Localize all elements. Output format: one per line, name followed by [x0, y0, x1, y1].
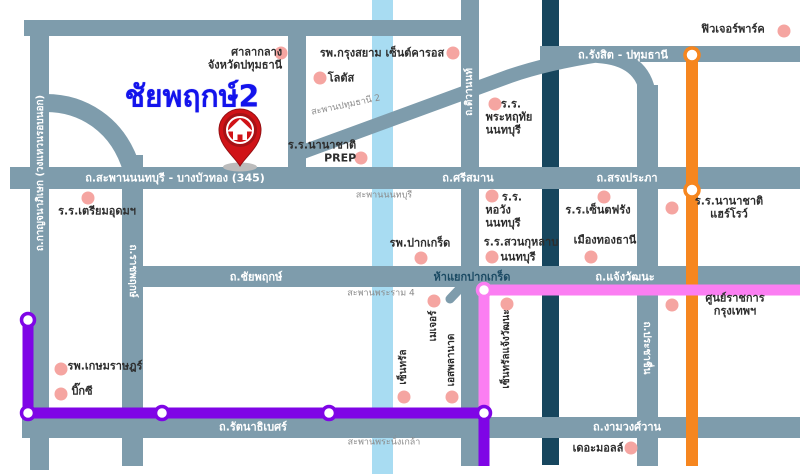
road-prachachuen	[637, 85, 658, 466]
road-ratchaphruek	[122, 155, 143, 466]
orange-transit-line	[686, 48, 698, 466]
poi-dot-esplanade	[446, 391, 459, 404]
station-futurepark	[685, 48, 699, 62]
poi-dot-prep	[355, 152, 368, 165]
poi-dot-horwang	[486, 190, 499, 203]
poi-dot-lotus	[314, 72, 327, 85]
station-songprapha	[685, 183, 699, 197]
poi-dot-central	[398, 391, 411, 404]
poi-dot-gov-center	[666, 299, 679, 312]
poi-dot-harrow	[666, 202, 679, 215]
station-purple-2	[22, 407, 35, 420]
poi-dot-bigc	[55, 388, 68, 401]
poi-dot-city-hall	[275, 47, 288, 60]
purple-line-stations	[22, 314, 491, 420]
station-purple-3	[156, 407, 169, 420]
poi-dot-muangthong	[585, 251, 598, 264]
location-pin-icon	[219, 109, 261, 172]
poi-dot-central-chaengwattana	[501, 298, 514, 311]
station-purple-4	[323, 407, 336, 420]
poi-dot-krungsiam	[447, 47, 460, 60]
poi-dots	[55, 25, 791, 455]
poi-dot-kasemrad	[55, 363, 68, 376]
poi-dot-suankularb	[486, 251, 499, 264]
poi-dot-stfrang	[598, 191, 611, 204]
map-graphics	[0, 0, 800, 474]
curve-kanchana-ratchaphruek	[46, 103, 132, 170]
pink-line-stations	[478, 284, 491, 297]
station-purple-5	[478, 407, 491, 420]
poi-dot-triamudom	[82, 192, 95, 205]
poi-dot-future-park	[778, 25, 791, 38]
station-purple-1	[22, 314, 35, 327]
poi-dot-the-mall	[625, 442, 638, 455]
station-pakkret	[478, 284, 491, 297]
poi-dot-pakkret-hospital	[415, 252, 428, 265]
poi-dot-phraharuthai	[489, 98, 502, 111]
poi-dot-major	[428, 295, 441, 308]
road-tiwanon	[461, 0, 479, 466]
map-canvas: ชัยพฤกษ์2 ถ.สะพานนนทบุรี - บางบัวทอง (34…	[0, 0, 800, 474]
road-top	[24, 20, 479, 36]
purple-transit-line	[28, 316, 484, 466]
chao-phraya-river	[372, 0, 393, 474]
